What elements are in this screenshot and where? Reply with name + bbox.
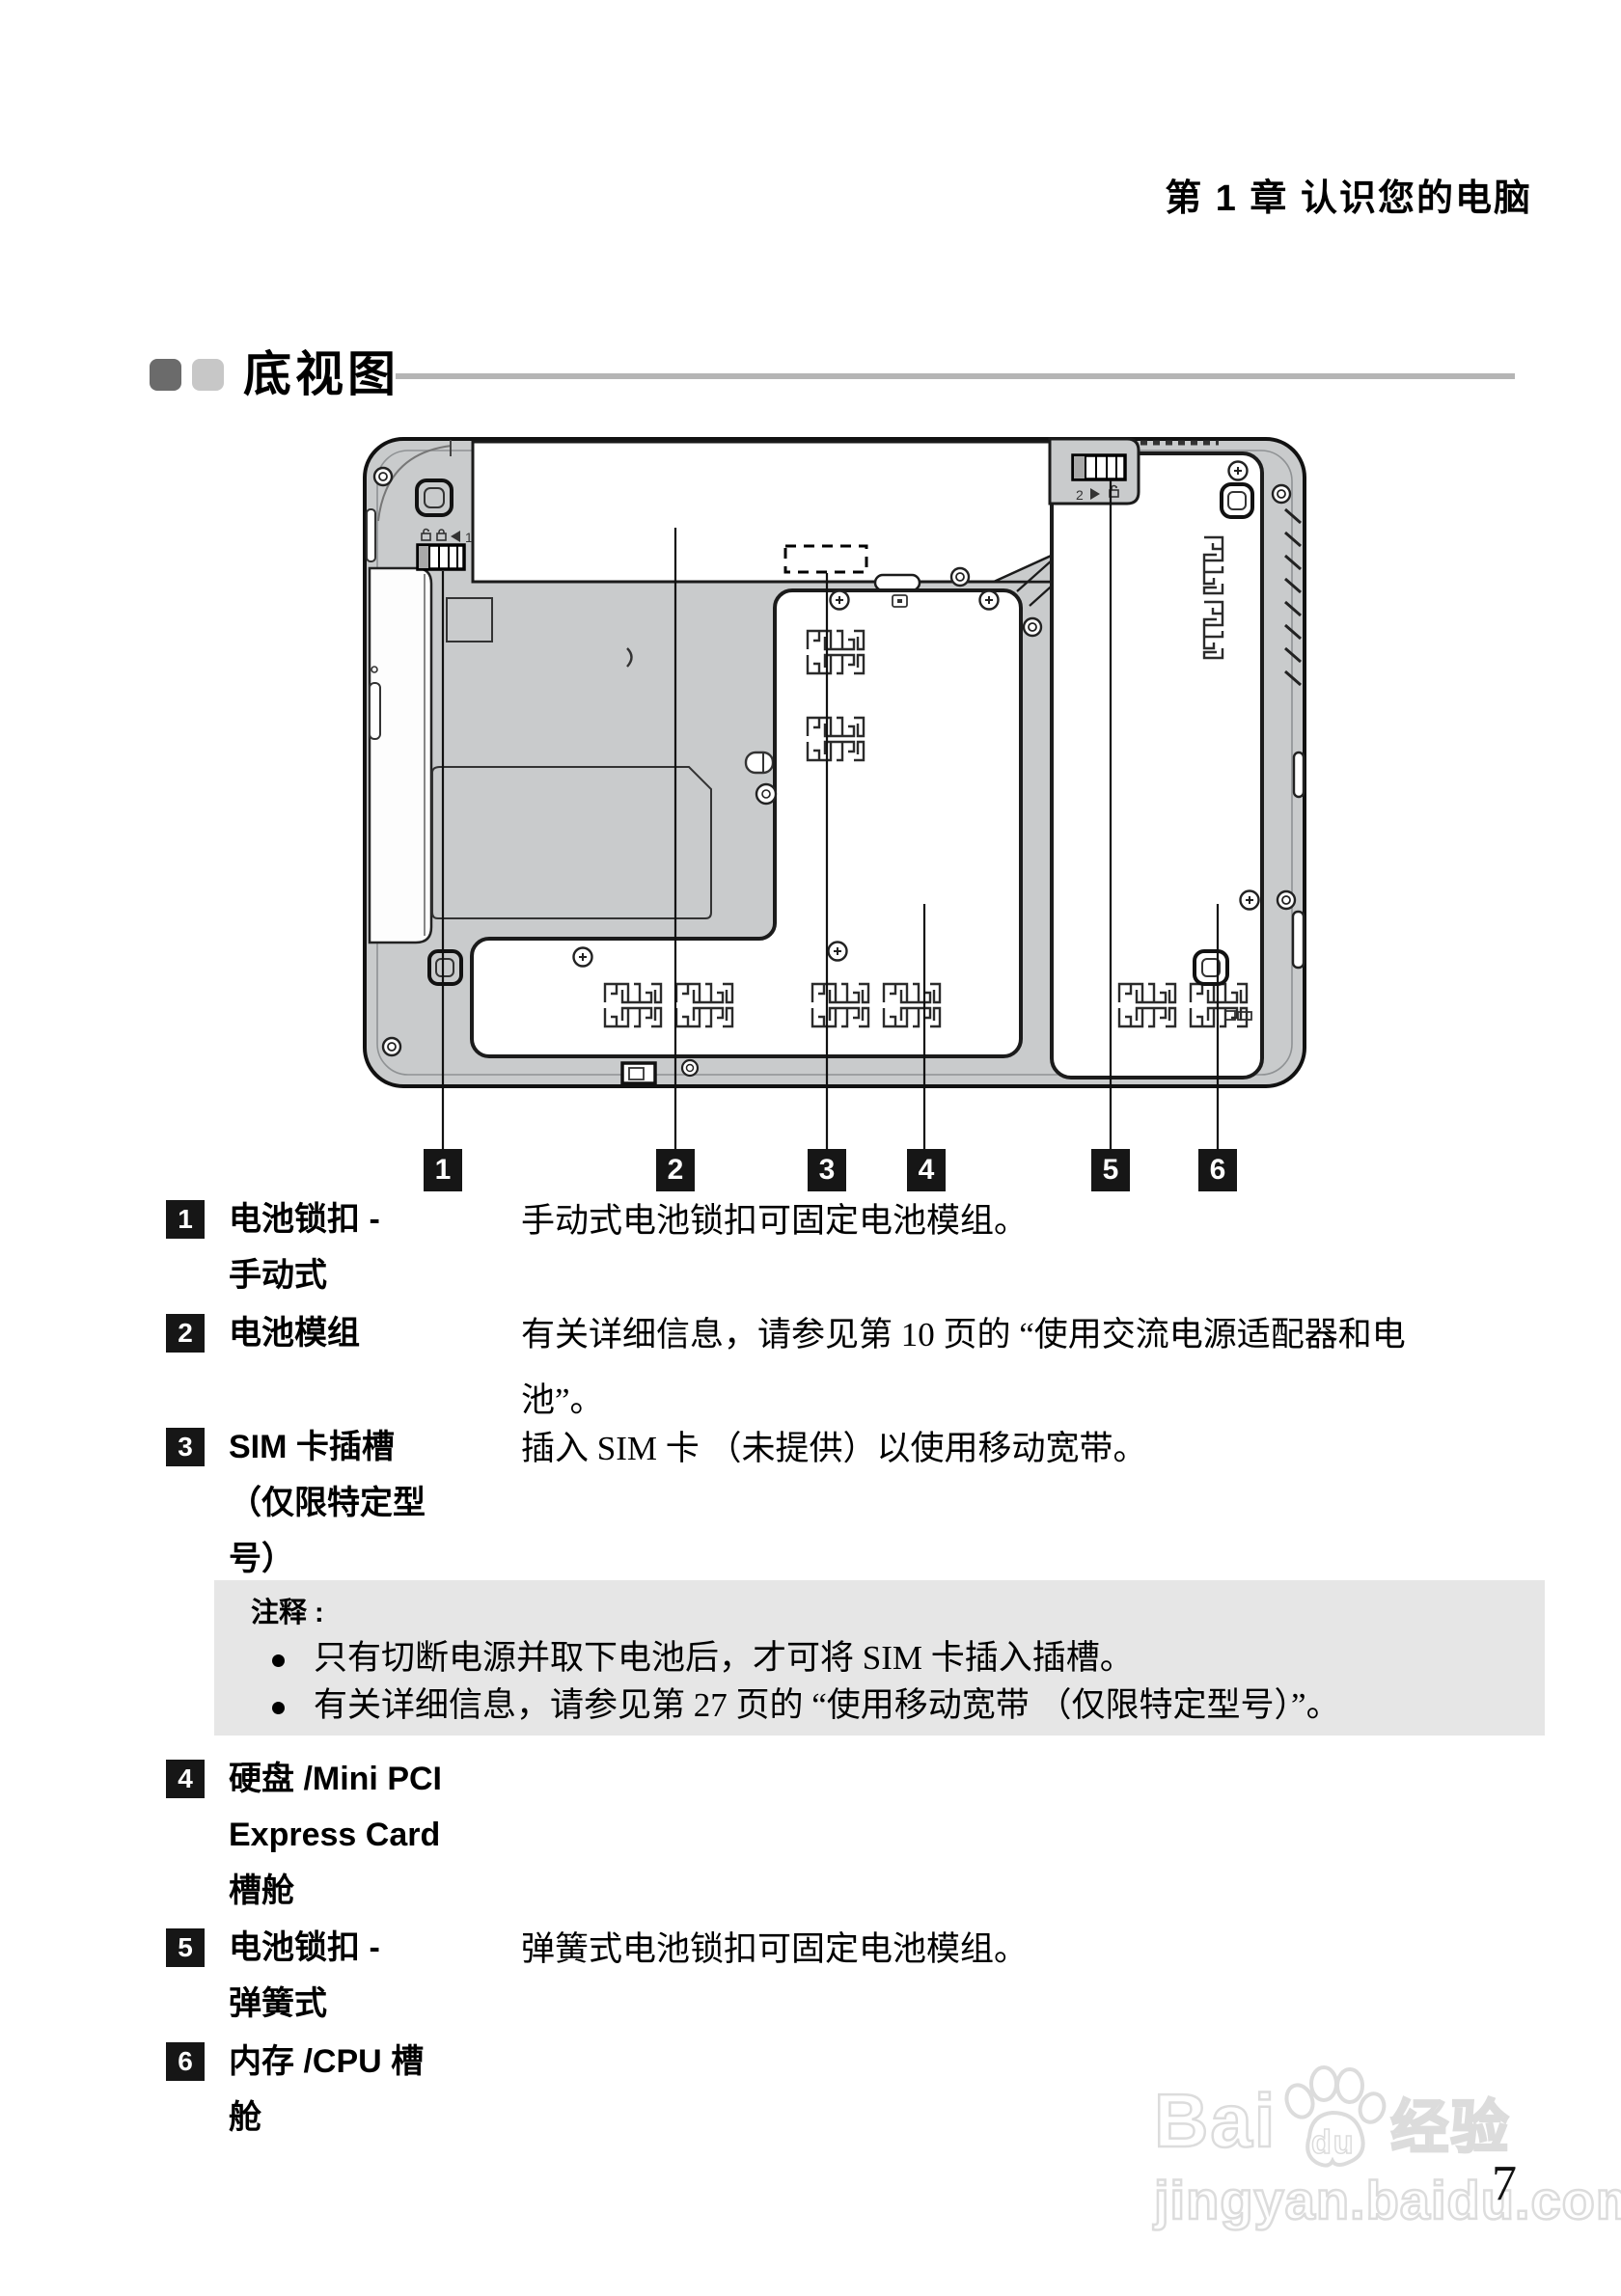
item-5-desc: 弹簧式电池锁扣可固定电池模组。 <box>521 1917 1544 1982</box>
page-number: 7 <box>1492 2155 1517 2212</box>
item-2-label: 电池模组 <box>229 1305 518 1361</box>
callout-chip-4: 4 <box>907 1149 946 1191</box>
foot-bottom-left <box>429 951 461 984</box>
memory-cpu-door <box>1052 453 1262 1078</box>
item-6-badge: 6 <box>166 2042 205 2081</box>
bullet-dot <box>272 1702 285 1714</box>
item-4-badge: 4 <box>166 1760 205 1798</box>
note-box: 注释 : 只有切断电源并取下电池后，才可将 SIM 卡插入插槽。 有关详细信息，… <box>214 1580 1545 1736</box>
note-title: 注释 : <box>251 1590 324 1630</box>
callout-chip-3: 3 <box>808 1149 846 1191</box>
item-5-badge: 5 <box>166 1928 205 1967</box>
note-bullet-1-text: 只有切断电源并取下电池后，才可将 SIM 卡插入插槽。 <box>314 1639 1134 1677</box>
title-marker-light-square <box>192 359 224 391</box>
paw-icon: du <box>1273 2064 1388 2171</box>
item-2-desc: 有关详细信息，请参见第 10 页的 “使用交流电源适配器和电 池”。 <box>521 1302 1544 1434</box>
laptop-bottom-view-diagram: 1 2 <box>357 434 1312 1153</box>
watermark-brand-left: Bai <box>1154 2077 1277 2165</box>
item-3-label: SIM 卡插槽 （仅限特定型 号） <box>229 1419 518 1587</box>
sim-card-slot <box>785 546 866 572</box>
item-1-badge: 1 <box>166 1200 205 1239</box>
callout-chip-5: 5 <box>1091 1149 1130 1191</box>
chapter-header: 第 1 章 认识您的电脑 <box>1165 168 1532 221</box>
item-1-label: 电池锁扣 - 手动式 <box>229 1191 518 1303</box>
item-4-label: 硬盘 /Mini PCI Express Card 槽舱 <box>229 1751 518 1919</box>
item-6-label: 内存 /CPU 槽 舱 <box>229 2034 518 2146</box>
watermark-brand-mid: du <box>1311 2124 1356 2161</box>
item-1-desc: 手动式电池锁扣可固定电池模组。 <box>521 1189 1544 1254</box>
callout-chip-2: 2 <box>656 1149 695 1191</box>
battery-bay <box>473 442 1068 582</box>
section-divider-line <box>396 373 1515 379</box>
bullet-dot <box>272 1654 285 1667</box>
title-marker-dark-square <box>150 359 181 391</box>
item-2-badge: 2 <box>166 1314 205 1353</box>
foot-top-left <box>417 480 452 515</box>
note-bullet-2-text: 有关详细信息，请参见第 27 页的 “使用移动宽带 （仅限特定型号）”。 <box>314 1686 1340 1724</box>
optical-drive-bay <box>370 568 431 943</box>
foot-top-right <box>1222 484 1252 517</box>
baidu-jingyan-watermark: Bai du 经验 <box>1154 2064 1510 2165</box>
foot-bottom-right <box>1195 951 1227 984</box>
item-5-label: 电池锁扣 - 弹簧式 <box>229 1920 518 2032</box>
watermark-url: jingyan.baidu.com <box>1154 2169 1621 2231</box>
callout-chip-6: 6 <box>1198 1149 1237 1191</box>
item-3-desc: 插入 SIM 卡 （未提供）以使用移动宽带。 <box>521 1416 1544 1482</box>
section-title: 底视图 <box>243 336 399 405</box>
latch1-mark: 1 <box>465 530 473 545</box>
manual-page: { "page": { "header": "第 1 章 认识您的电脑", "s… <box>0 0 1621 2296</box>
item-3-badge: 3 <box>166 1428 205 1466</box>
watermark-brand-cn: 经验 <box>1390 2081 1510 2165</box>
latch2-mark: 2 <box>1076 487 1084 503</box>
note-bullet-1: 只有切断电源并取下电池后，才可将 SIM 卡插入插槽。 <box>272 1630 1134 1680</box>
callout-chip-1: 1 <box>424 1149 462 1191</box>
note-bullet-2: 有关详细信息，请参见第 27 页的 “使用移动宽带 （仅限特定型号）”。 <box>272 1678 1340 1727</box>
